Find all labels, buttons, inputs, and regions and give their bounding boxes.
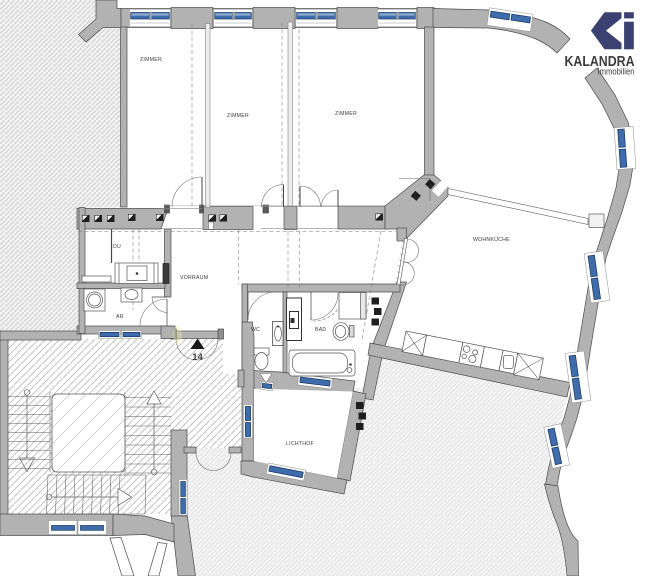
svg-text:VORRAUM: VORRAUM (180, 275, 208, 281)
svg-text:BAD: BAD (315, 327, 326, 333)
svg-text:ZIMMER: ZIMMER (335, 111, 357, 117)
svg-text:DU: DU (113, 244, 121, 250)
svg-text:ZIMMER: ZIMMER (140, 57, 162, 63)
svg-text:ZIMMER: ZIMMER (227, 113, 249, 119)
svg-text:AR: AR (116, 314, 124, 320)
svg-text:WC: WC (251, 327, 260, 333)
svg-text:WOHNKÜCHE: WOHNKÜCHE (473, 236, 510, 243)
svg-text:LICHTHOF: LICHTHOF (286, 441, 314, 447)
svg-text:14: 14 (192, 352, 203, 363)
svg-text:Immobilien: Immobilien (598, 67, 635, 78)
